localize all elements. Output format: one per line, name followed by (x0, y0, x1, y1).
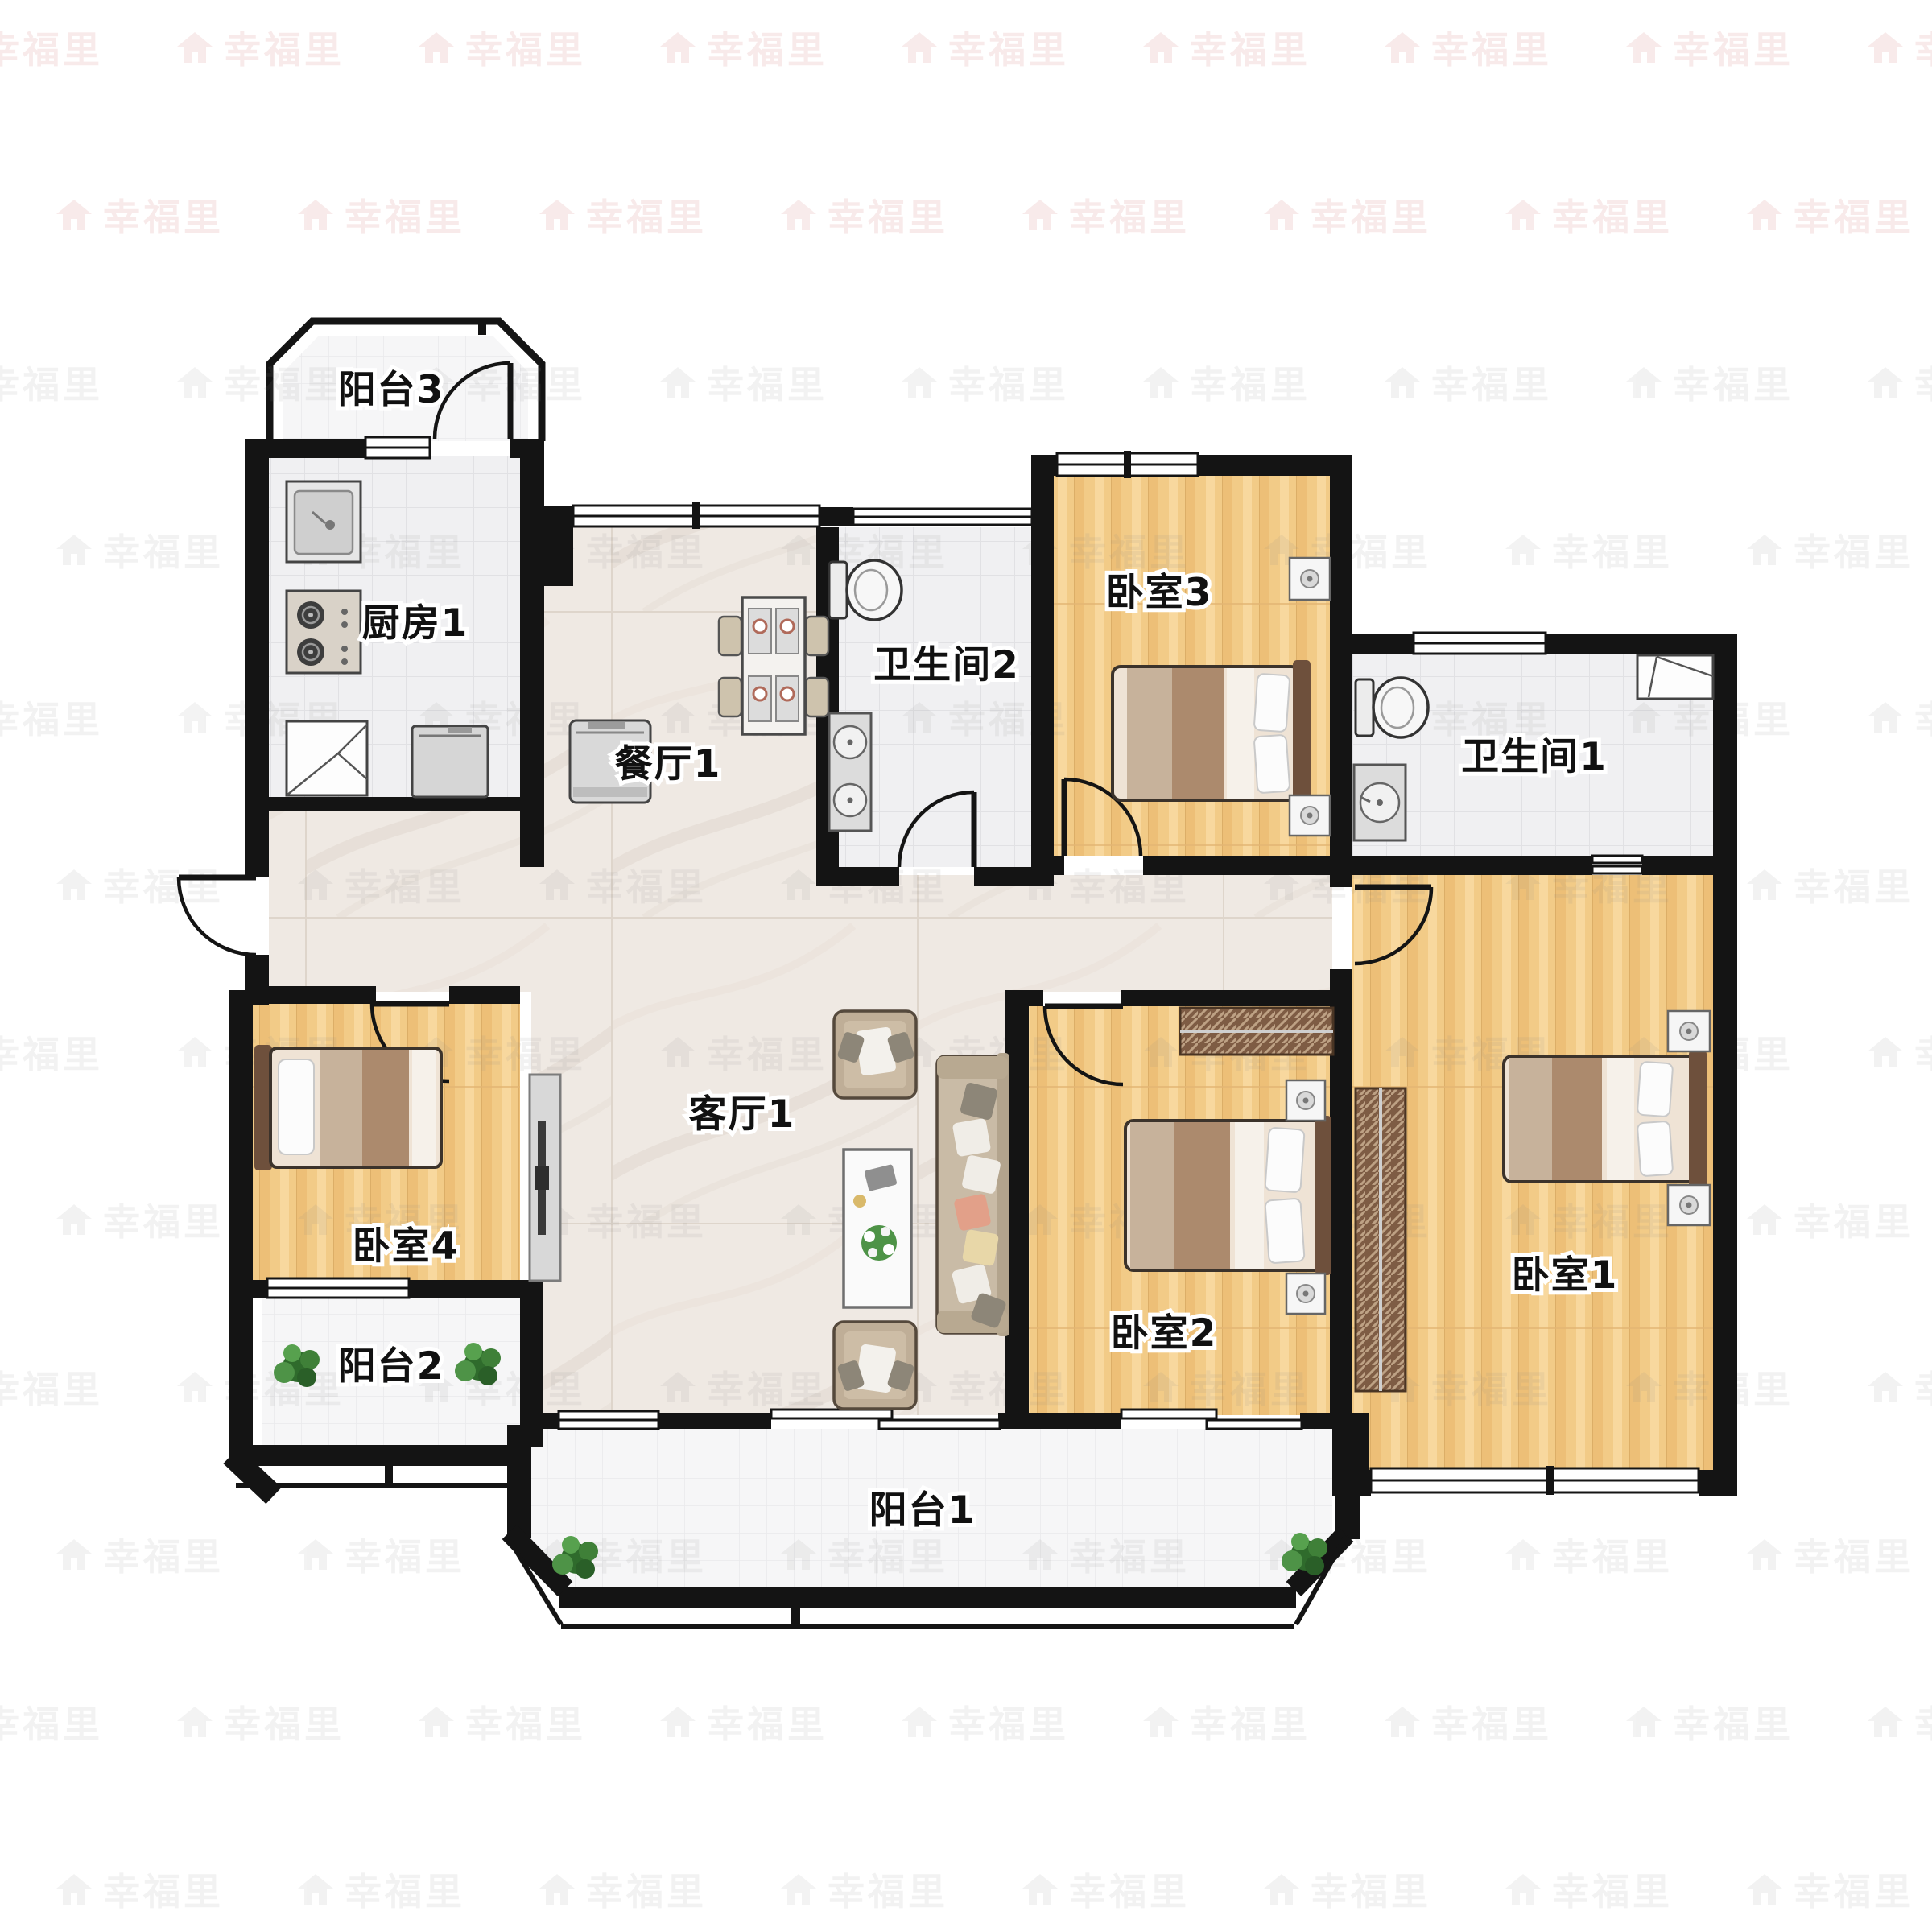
watermark-item: 幸福里 (298, 196, 465, 239)
watermark-text: 幸福里 (1552, 530, 1673, 574)
watermark-item: 幸福里 (0, 1368, 103, 1411)
house-logo-icon (1626, 32, 1662, 63)
watermark-item: 幸福里 (1385, 28, 1552, 72)
watermark-item: 幸福里 (0, 28, 103, 72)
house-logo-icon (1022, 200, 1058, 230)
house-logo-icon (902, 1707, 937, 1737)
watermark-item: 幸福里 (781, 1870, 948, 1913)
wardrobe-icon (1180, 1008, 1333, 1055)
watermark-item: 幸福里 (1385, 1703, 1552, 1746)
toilet-icon (829, 560, 902, 620)
room-label-bedroom-2: 卧室2 (1111, 1311, 1218, 1356)
balcony-3-mullion (478, 319, 486, 335)
floorplan-canvas: 幸福里幸福里幸福里幸福里幸福里幸福里幸福里幸福里幸福里幸福里幸福里幸福里幸福里幸… (0, 0, 1932, 1932)
watermark-item: 幸福里 (177, 28, 345, 72)
watermark-item: 幸福里 (1868, 1368, 1932, 1411)
watermark-item: 幸福里 (1868, 363, 1932, 407)
watermark-text: 幸福里 (0, 363, 103, 407)
watermark-text: 幸福里 (586, 196, 707, 239)
house-logo-icon (298, 200, 333, 230)
house-logo-icon (1505, 1874, 1541, 1905)
watermark-text: 幸福里 (1190, 28, 1311, 72)
house-logo-icon (1143, 32, 1179, 63)
house-logo-icon (660, 1707, 696, 1737)
watermark-item: 幸福里 (0, 363, 103, 407)
watermark-text: 幸福里 (345, 1535, 465, 1579)
watermark-item: 幸福里 (1626, 28, 1794, 72)
watermark-text: 幸福里 (1794, 1200, 1914, 1244)
watermark-text: 幸福里 (0, 1703, 103, 1746)
watermark-text: 幸福里 (103, 1870, 224, 1913)
shower-tray-icon (1637, 655, 1713, 699)
window-bathroom1-top (1414, 633, 1546, 654)
house-logo-icon (1385, 1707, 1420, 1737)
watermark-text: 幸福里 (1431, 1703, 1552, 1746)
watermark-text: 幸福里 (1794, 530, 1914, 574)
room-label-bedroom-4: 卧室4 (353, 1224, 460, 1269)
house-logo-icon (1747, 1539, 1782, 1570)
watermark-text: 幸福里 (1914, 1703, 1932, 1746)
watermark-text: 幸福里 (586, 530, 707, 574)
toilet-icon (1356, 678, 1428, 737)
house-logo-icon (1626, 367, 1662, 398)
watermark-item: 幸福里 (1747, 196, 1914, 239)
watermark-text: 幸福里 (1069, 1535, 1190, 1579)
house-logo-icon (56, 535, 92, 565)
watermark-item: 幸福里 (419, 28, 586, 72)
watermark-text: 幸福里 (1552, 1870, 1673, 1913)
watermark-item: 幸福里 (0, 1703, 103, 1746)
watermark-item: 幸福里 (1747, 1535, 1914, 1579)
house-logo-icon (1143, 367, 1179, 398)
window-kitchen-balcony3 (365, 437, 430, 458)
watermark-text: 幸福里 (465, 28, 586, 72)
house-logo-icon (1747, 1204, 1782, 1235)
room-label-bedroom-3: 卧室3 (1106, 571, 1213, 615)
double-bed-icon (1113, 660, 1311, 807)
watermark-text: 幸福里 (948, 363, 1069, 407)
nightstand-icon (1290, 795, 1330, 836)
watermark-item: 幸福里 (0, 1033, 103, 1076)
watermark-text: 幸福里 (345, 1870, 465, 1913)
watermark-item: 幸福里 (1505, 196, 1673, 239)
double-bed-icon (1504, 1050, 1707, 1188)
house-logo-icon (177, 1037, 213, 1067)
house-logo-icon (1264, 200, 1299, 230)
house-logo-icon (177, 1707, 213, 1737)
room-label-dining-1: 餐厅1 (615, 742, 722, 786)
house-logo-icon (419, 32, 454, 63)
coffee-table-icon (844, 1150, 911, 1307)
watermark-item: 幸福里 (902, 363, 1069, 407)
watermark-text: 幸福里 (103, 1535, 224, 1579)
watermark-item: 幸福里 (902, 1703, 1069, 1746)
nightstand-icon (1290, 558, 1330, 600)
watermark-item: 幸福里 (1868, 1703, 1932, 1746)
watermark-text: 幸福里 (1552, 1200, 1673, 1244)
house-logo-icon (1747, 535, 1782, 565)
watermark-item: 幸福里 (1264, 196, 1431, 239)
watermark-text: 幸福里 (1190, 363, 1311, 407)
nightstand-icon (1286, 1080, 1325, 1121)
watermark-item: 幸福里 (539, 196, 707, 239)
house-logo-icon (539, 1874, 575, 1905)
watermark-text: 幸福里 (0, 698, 103, 741)
watermark-item: 幸福里 (1868, 698, 1932, 741)
room-label-balcony-3: 阳台3 (338, 368, 445, 412)
watermark-item: 幸福里 (539, 1870, 707, 1913)
sliding-door-bathroom1 (1592, 856, 1642, 873)
watermark-item: 幸福里 (660, 28, 828, 72)
watermark-item: 幸福里 (1022, 196, 1190, 239)
watermark-text: 幸福里 (1914, 363, 1932, 407)
house-logo-icon (1868, 367, 1903, 398)
watermark-text: 幸福里 (103, 196, 224, 239)
watermark-text: 幸福里 (345, 530, 465, 574)
house-logo-icon (1022, 1874, 1058, 1905)
house-logo-icon (56, 1874, 92, 1905)
house-logo-icon (781, 200, 816, 230)
sofa-icon (937, 1053, 1009, 1336)
kitchen-sink-icon (287, 481, 361, 562)
house-logo-icon (56, 200, 92, 230)
watermark-text: 幸福里 (1069, 1870, 1190, 1913)
room-label-bathroom-1: 卫生间1 (1461, 735, 1608, 779)
watermark-text: 幸福里 (1794, 196, 1914, 239)
basin-icon (1354, 765, 1406, 840)
house-logo-icon (56, 869, 92, 900)
watermark-item: 幸福里 (56, 530, 224, 574)
watermark-item: 幸福里 (1505, 530, 1673, 574)
double-basin-vanity-icon (829, 713, 871, 831)
house-logo-icon (539, 200, 575, 230)
room-label-bedroom-1: 卧室1 (1512, 1253, 1619, 1298)
watermark-text: 幸福里 (224, 1703, 345, 1746)
armchair-icon (834, 1011, 916, 1098)
house-logo-icon (1868, 1372, 1903, 1402)
watermark-item: 幸福里 (56, 865, 224, 909)
house-logo-icon (1747, 1874, 1782, 1905)
house-logo-icon (1264, 1874, 1299, 1905)
room-label-living-1: 客厅1 (689, 1092, 796, 1137)
house-logo-icon (902, 367, 937, 398)
watermark-text: 幸福里 (707, 1703, 828, 1746)
watermark-text: 幸福里 (948, 28, 1069, 72)
watermark-text: 幸福里 (1431, 363, 1552, 407)
watermark-item: 幸福里 (1385, 363, 1552, 407)
house-logo-icon (1868, 32, 1903, 63)
kitchen-appliance-icon (412, 726, 488, 797)
watermark-text: 幸福里 (1914, 1368, 1932, 1411)
house-logo-icon (1747, 869, 1782, 900)
watermark-text: 幸福里 (1069, 196, 1190, 239)
room-label-balcony-1: 阳台1 (869, 1488, 976, 1533)
house-logo-icon (177, 1372, 213, 1402)
watermark-text: 幸福里 (1794, 1535, 1914, 1579)
watermark-item: 幸福里 (298, 1535, 465, 1579)
watermark-text: 幸福里 (1673, 1703, 1794, 1746)
watermark-text: 幸福里 (224, 363, 345, 407)
watermark-text: 幸福里 (586, 1200, 707, 1244)
house-logo-icon (660, 32, 696, 63)
watermark-item: 幸福里 (1868, 1033, 1932, 1076)
watermark-item: 幸福里 (660, 363, 828, 407)
watermark-item: 幸福里 (56, 1535, 224, 1579)
watermark-item: 幸福里 (660, 1703, 828, 1746)
watermark-text: 幸福里 (103, 530, 224, 574)
watermark-item: 幸福里 (419, 1703, 586, 1746)
house-logo-icon (1505, 535, 1541, 565)
stove-icon (287, 591, 361, 673)
house-logo-icon (56, 1539, 92, 1570)
window-bedroom4-balcony2 (267, 1278, 409, 1298)
watermark-text: 幸福里 (0, 28, 103, 72)
watermark-item: 幸福里 (177, 1703, 345, 1746)
watermark-text: 幸福里 (1914, 1033, 1932, 1076)
watermark-item: 幸福里 (177, 1368, 345, 1411)
watermark-item: 幸福里 (1747, 1870, 1914, 1913)
watermark-text: 幸福里 (345, 196, 465, 239)
watermark-text: 幸福里 (465, 1033, 586, 1076)
nightstand-icon (1668, 1185, 1710, 1225)
house-logo-icon (660, 367, 696, 398)
watermark-item: 幸福里 (56, 1200, 224, 1244)
watermark-text: 幸福里 (1190, 1703, 1311, 1746)
watermark-text: 幸福里 (1673, 28, 1794, 72)
watermark-item: 幸福里 (1747, 530, 1914, 574)
watermark-text: 幸福里 (1552, 196, 1673, 239)
watermark-item: 幸福里 (1747, 1200, 1914, 1244)
watermark-text: 幸福里 (1431, 1368, 1552, 1411)
watermark-text: 幸福里 (586, 1535, 707, 1579)
house-logo-icon (1505, 200, 1541, 230)
house-logo-icon (1626, 1707, 1662, 1737)
watermark-text: 幸福里 (224, 28, 345, 72)
house-logo-icon (1385, 32, 1420, 63)
watermark-text: 幸福里 (707, 28, 828, 72)
watermark-item: 幸福里 (56, 1870, 224, 1913)
watermark-item: 幸福里 (1143, 363, 1311, 407)
house-logo-icon (1143, 1707, 1179, 1737)
armchair-icon (834, 1322, 916, 1409)
watermark-item: 幸福里 (1626, 1703, 1794, 1746)
window-bedroom3-top (1057, 451, 1198, 478)
room-label-balcony-2: 阳台2 (338, 1344, 445, 1389)
house-logo-icon (1505, 1539, 1541, 1570)
house-logo-icon (419, 1707, 454, 1737)
tv-cabinet-icon (530, 1075, 560, 1281)
house-logo-icon (1747, 200, 1782, 230)
nightstand-icon (1668, 1011, 1710, 1051)
watermark-text: 幸福里 (1914, 698, 1932, 741)
watermark-text: 幸福里 (1431, 28, 1552, 72)
house-logo-icon (177, 367, 213, 398)
watermark-item: 幸福里 (0, 698, 103, 741)
watermark-item: 幸福里 (902, 28, 1069, 72)
room-label-kitchen-1: 厨房1 (362, 601, 469, 646)
watermark-text: 幸福里 (1673, 363, 1794, 407)
watermark-text: 幸福里 (707, 363, 828, 407)
watermark-item: 幸福里 (1868, 28, 1932, 72)
window-dining-top (573, 502, 819, 529)
corner-cabinet-icon (287, 721, 367, 795)
window-bathroom2-top (853, 509, 1032, 525)
watermark-item: 幸福里 (298, 1870, 465, 1913)
watermark-text: 幸福里 (0, 1033, 103, 1076)
watermark-item: 幸福里 (1022, 1870, 1190, 1913)
watermark-item: 幸福里 (177, 363, 345, 407)
watermark-text: 幸福里 (586, 865, 707, 909)
watermark-text: 幸福里 (103, 1200, 224, 1244)
house-logo-icon (1868, 702, 1903, 733)
watermark-item: 幸福里 (56, 196, 224, 239)
watermark-text: 幸福里 (707, 1368, 828, 1411)
room-label-bathroom-2: 卫生间2 (873, 643, 1020, 687)
watermark-text: 幸福里 (1552, 1535, 1673, 1579)
floorplan-image: 幸福里幸福里幸福里幸福里幸福里幸福里幸福里幸福里幸福里幸福里幸福里幸福里幸福里幸… (0, 0, 1932, 1932)
watermark-item: 幸福里 (1143, 1703, 1311, 1746)
watermark-text: 幸福里 (948, 1703, 1069, 1746)
watermark-text: 幸福里 (1190, 1368, 1311, 1411)
double-bed-icon (1125, 1116, 1331, 1275)
watermark-text: 幸福里 (465, 1703, 586, 1746)
watermark-text: 幸福里 (828, 1870, 948, 1913)
watermark-text: 幸福里 (1311, 1870, 1431, 1913)
house-logo-icon (781, 1874, 816, 1905)
window-bedroom1-bottom (1371, 1466, 1699, 1495)
watermark-item: 幸福里 (1143, 28, 1311, 72)
watermark-item: 幸福里 (1505, 1870, 1673, 1913)
house-logo-icon (298, 1539, 333, 1570)
watermark-item: 幸福里 (1264, 1870, 1431, 1913)
watermark-item: 幸福里 (1505, 1535, 1673, 1579)
house-logo-icon (56, 1204, 92, 1235)
watermark-text: 幸福里 (1794, 1870, 1914, 1913)
watermark-text: 幸福里 (707, 1033, 828, 1076)
house-logo-icon (1385, 367, 1420, 398)
window-living-left (559, 1411, 658, 1429)
watermark-text: 幸福里 (1311, 196, 1431, 239)
watermark-item: 幸福里 (781, 196, 948, 239)
house-logo-icon (177, 702, 213, 733)
house-logo-icon (902, 32, 937, 63)
nightstand-icon (1286, 1274, 1325, 1314)
watermark-text: 幸福里 (0, 1368, 103, 1411)
watermark-text: 幸福里 (1794, 865, 1914, 909)
watermark-text: 幸福里 (103, 865, 224, 909)
watermark-item: 幸福里 (1626, 363, 1794, 407)
house-logo-icon (177, 32, 213, 63)
watermark-text: 幸福里 (1069, 530, 1190, 574)
watermark-text: 幸福里 (828, 196, 948, 239)
house-logo-icon (298, 1874, 333, 1905)
watermark-text: 幸福里 (1914, 28, 1932, 72)
single-bed-icon (254, 1045, 441, 1170)
watermark-item: 幸福里 (1747, 865, 1914, 909)
house-logo-icon (1868, 1707, 1903, 1737)
watermark-text: 幸福里 (345, 865, 465, 909)
wardrobe-icon (1356, 1088, 1406, 1391)
watermark-text: 幸福里 (828, 1535, 948, 1579)
watermark-text: 幸福里 (586, 1870, 707, 1913)
house-logo-icon (1868, 1037, 1903, 1067)
